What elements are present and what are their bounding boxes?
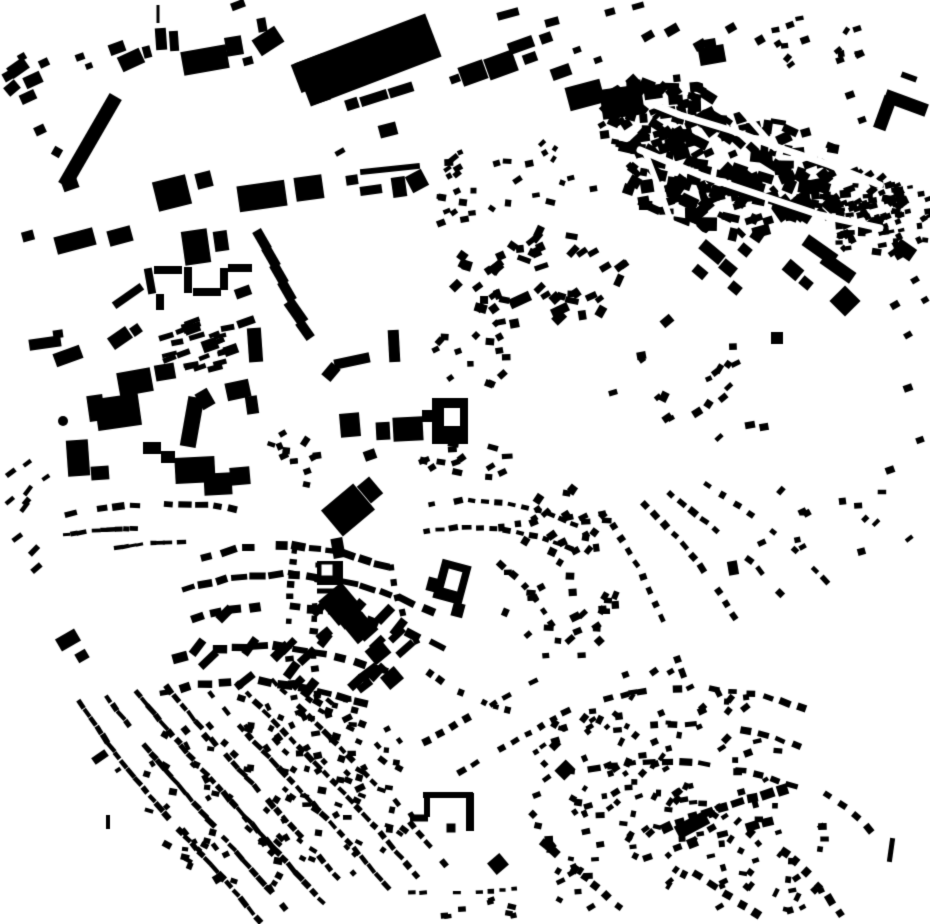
map-viewport [0,0,930,924]
figure-ground-building-map [0,0,930,924]
